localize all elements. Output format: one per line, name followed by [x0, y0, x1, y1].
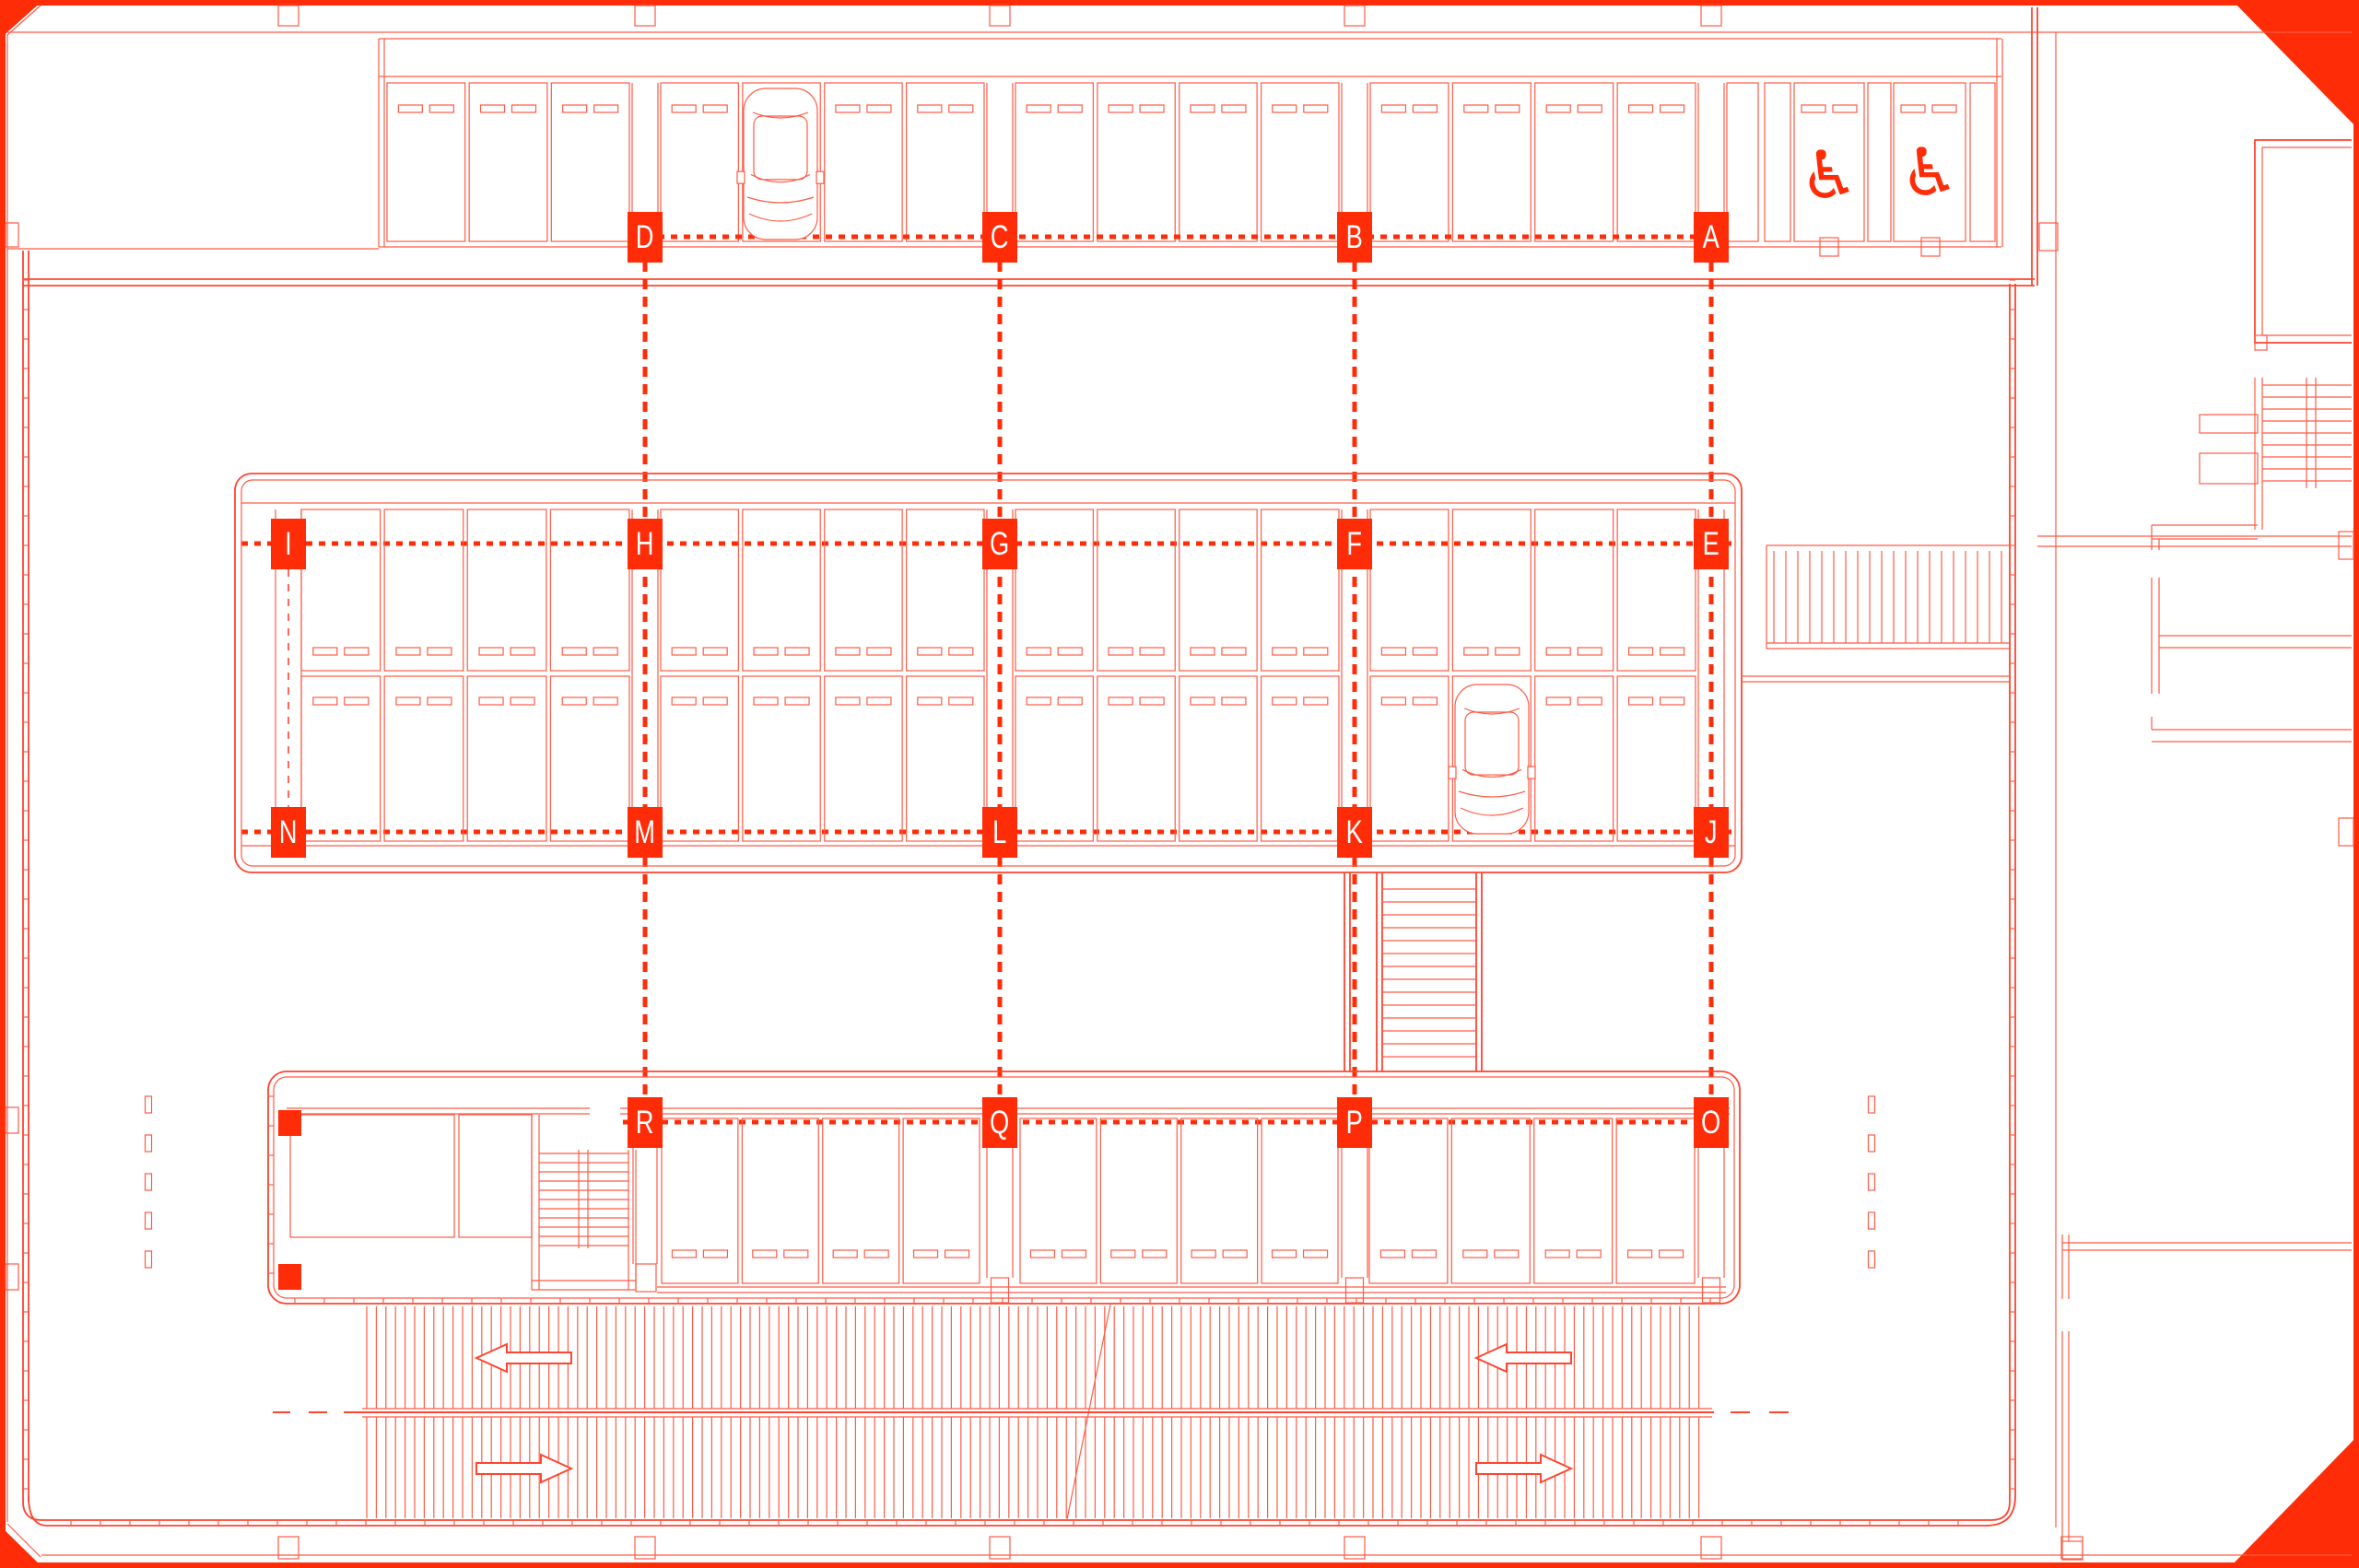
grid-marker-label: F — [1347, 528, 1363, 560]
grid-marker-label: L — [992, 816, 1006, 848]
lower-block-stalls — [633, 1115, 1726, 1303]
grid-marker-label: N — [279, 816, 298, 848]
grid-marker-p: P — [1337, 1097, 1372, 1148]
grid-marker-f: F — [1337, 519, 1372, 569]
grid-marker-r: R — [628, 1097, 663, 1148]
grid-marker-k: K — [1337, 807, 1372, 858]
grid-marker-c: C — [982, 212, 1017, 263]
grid-marker-label: M — [635, 816, 656, 848]
wheelchair-icon: ♿ — [1900, 139, 1960, 205]
top-parking-row — [379, 39, 2002, 247]
grid-marker-h: H — [628, 519, 663, 569]
grid-marker-label: D — [636, 221, 654, 253]
stairs-east — [1742, 545, 2010, 682]
grid-marker-q: Q — [982, 1097, 1017, 1148]
grid-marker-label: G — [990, 528, 1009, 560]
car-icon — [737, 88, 824, 240]
arrow-right-icon — [1476, 1455, 1571, 1482]
grid-marker-label: B — [1346, 221, 1363, 253]
car-icon — [1449, 685, 1535, 834]
grid-marker-b: B — [1337, 212, 1372, 263]
grid-marker-j: J — [1694, 807, 1729, 858]
grid-marker-o: O — [1694, 1097, 1729, 1148]
grid-marker-label: I — [285, 528, 292, 560]
grid-marker-label: H — [636, 528, 654, 560]
grid-marker-d: D — [628, 212, 663, 263]
grid-marker-n: N — [271, 807, 306, 858]
grid-marker-label: O — [1701, 1106, 1720, 1139]
plan-linework — [0, 0, 2359, 1568]
floor-plan: DCBAIHGFENMLKJRQPO♿♿ — [0, 0, 2359, 1568]
grid-marker-label: P — [1346, 1106, 1363, 1139]
grid-marker-e: E — [1694, 519, 1729, 569]
grid-marker-m: M — [628, 807, 663, 858]
grid-marker-label: E — [1703, 528, 1719, 560]
wheelchair-icon: ♿ — [1800, 142, 1860, 208]
grid-marker-l: L — [982, 807, 1017, 858]
stairs-lower — [532, 1115, 636, 1290]
grid-marker-label: R — [636, 1106, 654, 1139]
grid-marker-label: C — [991, 221, 1009, 253]
grid-marker-label: K — [1346, 816, 1363, 848]
grid-marker-i: I — [271, 519, 306, 569]
arrow-right-icon — [476, 1455, 571, 1482]
arrow-left-icon — [1476, 1344, 1571, 1372]
grid-marker-label: Q — [990, 1106, 1009, 1139]
grid-marker-label: J — [1705, 816, 1718, 848]
grid-marker-a: A — [1694, 212, 1729, 263]
grid-marker-g: G — [982, 519, 1017, 569]
east-fragments — [2037, 140, 2352, 1560]
grid-marker-label: A — [1703, 221, 1719, 253]
stairs-center — [1344, 872, 1482, 1071]
arrow-left-icon — [476, 1344, 571, 1372]
